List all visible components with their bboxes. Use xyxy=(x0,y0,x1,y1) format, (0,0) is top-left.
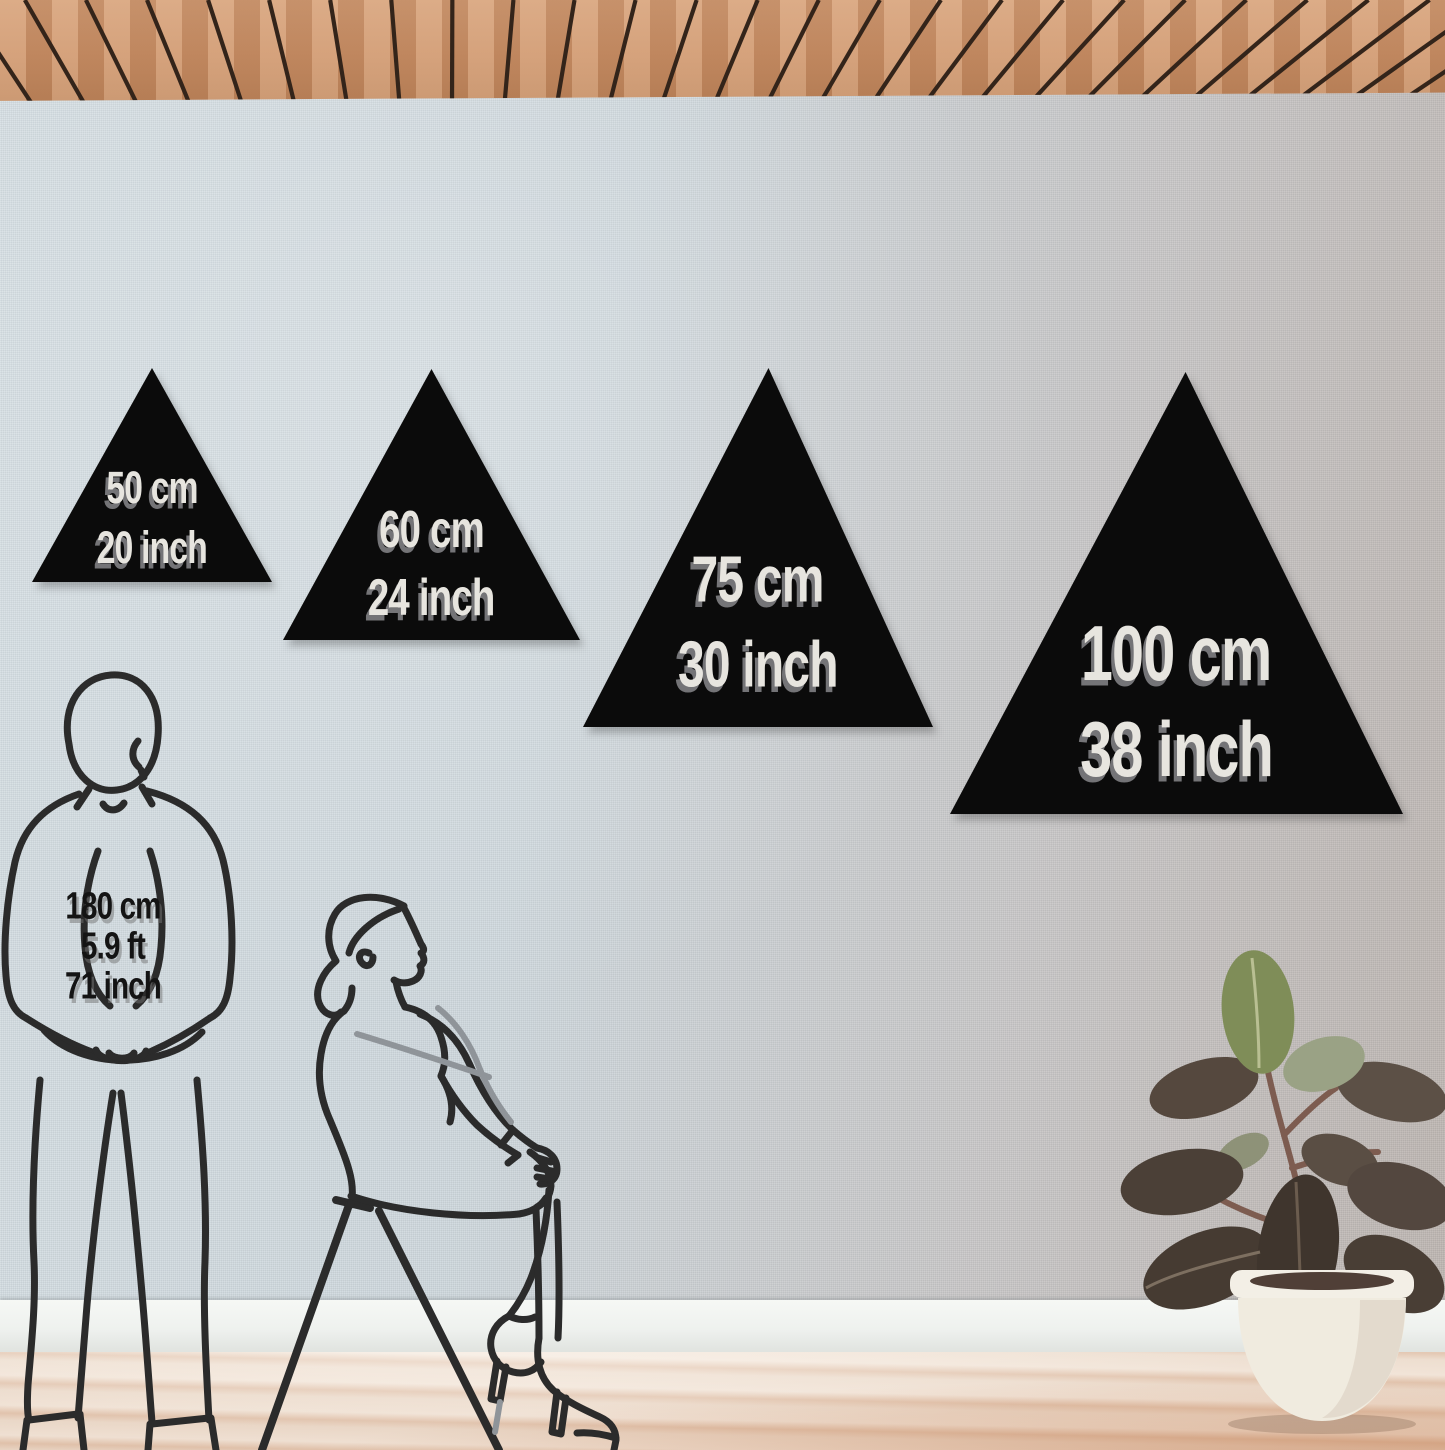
line-art-figures xyxy=(0,0,1445,1450)
product-size-chart-scene: 50 cm 20 inch 60 cm 24 inch 75 cm 30 inc… xyxy=(0,0,1445,1450)
standing-man-figure xyxy=(5,675,232,1450)
height-inch: 71 inch xyxy=(31,965,195,1007)
stool xyxy=(262,1200,499,1450)
height-ft: 5.9 ft xyxy=(31,925,195,967)
seated-woman-figure xyxy=(318,897,616,1450)
height-cm: 180 cm xyxy=(31,885,195,927)
person-height-label: 180 cm 5.9 ft 71 inch xyxy=(13,886,213,1006)
